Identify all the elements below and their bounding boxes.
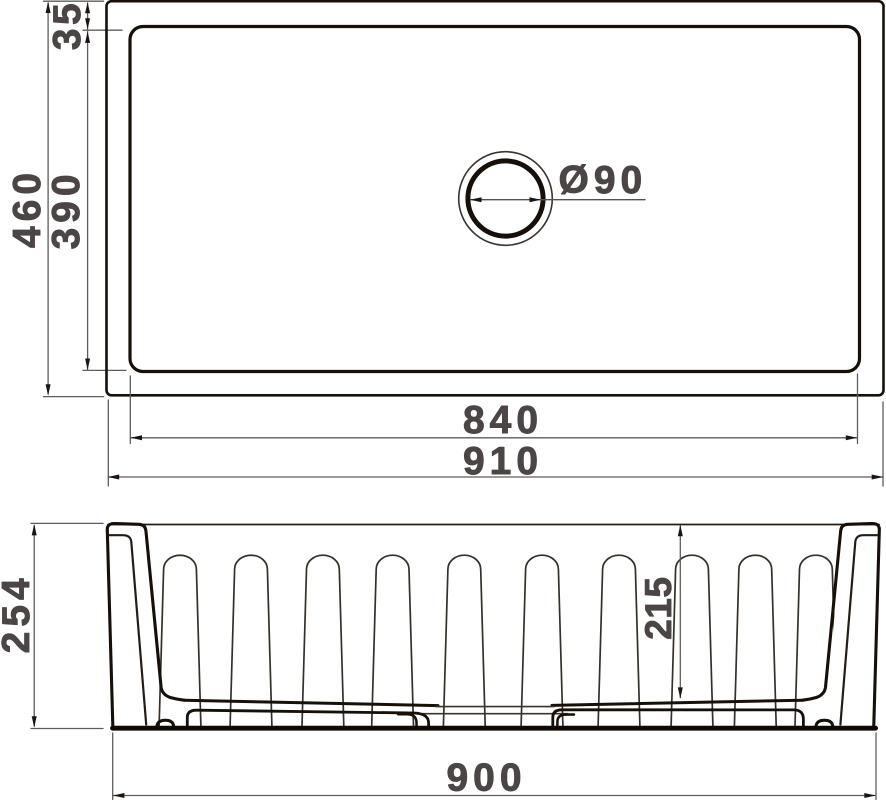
svg-text:910: 910 — [463, 440, 543, 483]
svg-text:35: 35 — [46, 0, 89, 50]
svg-text:215: 215 — [638, 577, 679, 640]
svg-text:900: 900 — [446, 757, 526, 800]
svg-text:390: 390 — [45, 169, 88, 249]
svg-text:Ø90: Ø90 — [559, 159, 648, 202]
svg-text:254: 254 — [0, 573, 38, 653]
svg-text:840: 840 — [463, 399, 543, 442]
svg-text:460: 460 — [6, 168, 49, 248]
